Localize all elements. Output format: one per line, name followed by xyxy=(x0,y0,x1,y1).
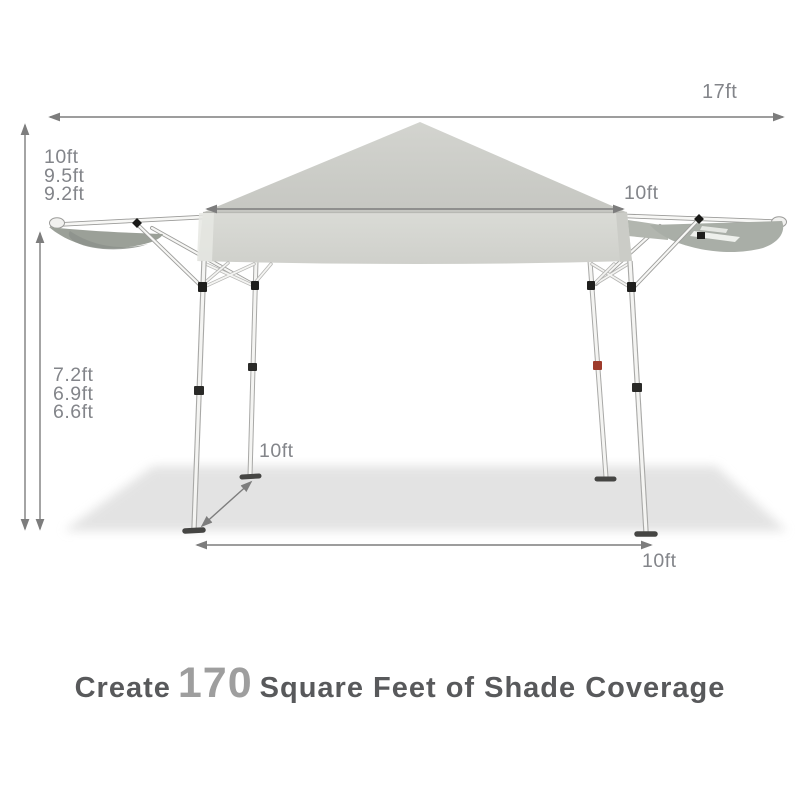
caption-suffix: Square Feet of Shade Coverage xyxy=(260,672,726,704)
red-adjuster-clamp xyxy=(593,361,602,370)
product-diagram: 17ft 10ft 9.5ft 9.2ft 10ft 7.2ft 6.9ft 6… xyxy=(0,0,800,800)
label-peak-height-3: 9.2ft xyxy=(44,185,84,204)
right-awning-fabric xyxy=(628,220,783,252)
ground-shadow xyxy=(64,466,787,531)
back-left-foot xyxy=(242,476,259,477)
caption-prefix: Create xyxy=(75,672,171,704)
height-adjuster-clamps xyxy=(194,361,642,395)
right-awning-clamp xyxy=(697,232,705,239)
caption-highlight-number: 170 xyxy=(178,659,253,707)
label-eave-height-1: 7.2ft xyxy=(53,366,93,385)
label-leg-width: 10ft xyxy=(642,552,677,571)
corner-braces xyxy=(202,263,614,285)
label-peak-heights: 10ft 9.5ft 9.2ft xyxy=(44,148,84,204)
label-eave-height-3: 6.6ft xyxy=(53,403,93,422)
canopy-valance xyxy=(197,212,632,264)
canopy-roof xyxy=(204,122,626,212)
shade-coverage-caption: Create170Square Feet of Shade Coverage xyxy=(0,659,800,708)
label-leg-depth: 10ft xyxy=(259,442,294,461)
back-right-leg xyxy=(590,261,614,479)
left-awning-pole xyxy=(50,217,205,228)
label-eave-heights: 7.2ft 6.9ft 6.6ft xyxy=(53,366,93,422)
front-left-foot xyxy=(185,530,203,531)
left-pole-cap xyxy=(50,218,65,228)
label-peak-height-1: 10ft xyxy=(44,148,84,167)
label-total-width: 17ft xyxy=(702,83,737,102)
leg-clips xyxy=(198,281,636,292)
label-canopy-width: 10ft xyxy=(624,184,659,203)
